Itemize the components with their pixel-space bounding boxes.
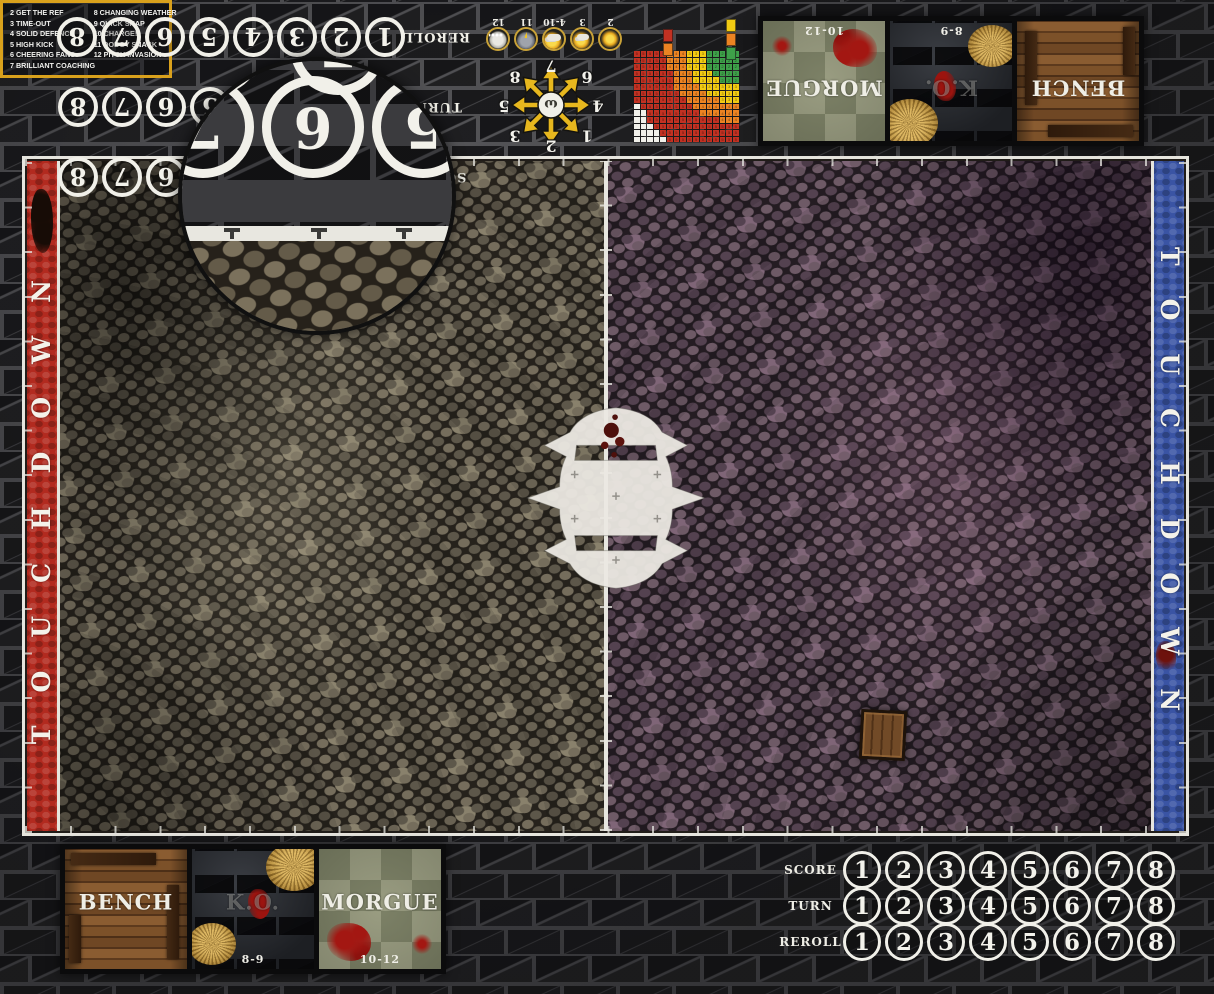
range-cell-long-bomb: 5 xyxy=(733,130,739,136)
touchdown-text-left: TOUCHDOWN xyxy=(27,161,57,831)
magnified-pitch-border xyxy=(182,226,452,241)
number-token: 1 xyxy=(843,923,881,961)
range-cell-long-pass: 4 xyxy=(733,104,739,110)
range-cell-long-pass: 4 xyxy=(680,71,686,77)
range-cell-long-bomb: 5 xyxy=(660,124,666,130)
range-cell-long-bomb: 5 xyxy=(674,110,680,116)
number-token: 2 xyxy=(885,887,923,925)
range-cell-long-pass: 4 xyxy=(713,97,719,103)
track-tokens: 12345678 xyxy=(843,923,1175,961)
range-cell-short-pass: 3 xyxy=(726,91,732,97)
range-cell-long-bomb: 5 xyxy=(700,124,706,130)
range-cell-out-of-range xyxy=(634,124,640,130)
range-cell-long-pass: 4 xyxy=(733,117,739,123)
number-token: 7 xyxy=(1095,923,1133,961)
pass-range-ruler: 5555544433322222555554443332222255555444… xyxy=(633,50,740,143)
range-cell-long-pass: 4 xyxy=(700,97,706,103)
magnified-content: 5678 76 xyxy=(182,61,452,331)
range-cell-long-bomb: 5 xyxy=(667,77,673,83)
range-cell-long-bomb: 5 xyxy=(667,117,673,123)
range-cell-long-pass: 4 xyxy=(700,104,706,110)
range-cell-out-of-range xyxy=(654,137,660,143)
dugout-box-bench: BENCH xyxy=(65,849,187,969)
range-cell-long-bomb: 5 xyxy=(720,130,726,136)
number-token: 2 xyxy=(885,923,923,961)
range-cell-long-bomb: 5 xyxy=(660,58,666,64)
range-cell-long-bomb: 5 xyxy=(654,117,660,123)
dugout-dice-range: 8-9 xyxy=(192,953,314,966)
number-token: 4 xyxy=(969,923,1007,961)
range-cell-long-bomb: 5 xyxy=(667,124,673,130)
dugout-dice-range: 10-12 xyxy=(763,24,885,37)
range-cell-long-bomb: 5 xyxy=(660,117,666,123)
sun-icon xyxy=(599,27,623,51)
range-cell-long-pass: 4 xyxy=(680,84,686,90)
range-cell-out-of-range xyxy=(641,124,647,130)
range-cell-long-bomb: 5 xyxy=(680,110,686,116)
range-cell-long-bomb: 5 xyxy=(641,58,647,64)
range-cell-out-of-range xyxy=(660,137,666,143)
range-cell-quick-pass: 2 xyxy=(733,77,739,83)
range-cell-long-bomb: 5 xyxy=(733,137,739,143)
range-cell-short-pass: 3 xyxy=(733,84,739,90)
range-cell-long-pass: 4 xyxy=(720,104,726,110)
range-cell-long-bomb: 5 xyxy=(674,97,680,103)
range-cell-long-bomb: 5 xyxy=(667,91,673,97)
number-token: 2 xyxy=(321,17,361,57)
weather-cell: 4-10 xyxy=(542,16,567,51)
range-legend-right xyxy=(726,19,736,60)
scatter-number: 7 xyxy=(545,57,556,76)
track-tokens: 12345678 xyxy=(57,17,405,57)
track-tokens: 12345678 xyxy=(843,887,1175,925)
track-tokens: 12345678 xyxy=(843,851,1175,889)
weather-track: 234-101112 xyxy=(486,16,623,51)
range-cell-quick-pass: 2 xyxy=(713,71,719,77)
number-token: 1 xyxy=(843,887,881,925)
range-cell-long-bomb: 5 xyxy=(713,117,719,123)
range-cell-out-of-range xyxy=(641,117,647,123)
range-cell-long-bomb: 5 xyxy=(693,130,699,136)
dugout-box-content: BENCH xyxy=(65,849,187,969)
range-cell-long-bomb: 5 xyxy=(634,71,640,77)
number-token: 6 xyxy=(1053,887,1091,925)
range-cell-long-bomb: 5 xyxy=(641,97,647,103)
range-cell-long-pass: 4 xyxy=(674,58,680,64)
legend-cell xyxy=(663,43,673,56)
number-token: 8 xyxy=(57,17,97,57)
range-cell-long-bomb: 5 xyxy=(660,110,666,116)
wood-beam xyxy=(69,915,81,963)
range-cell-long-bomb: 5 xyxy=(647,51,653,57)
range-cell-out-of-range xyxy=(634,130,640,136)
track-row: REROLL12345678 xyxy=(778,924,1190,960)
weather-dice-label: 4-10 xyxy=(543,16,566,26)
dugout-label: K.O. xyxy=(890,76,1012,101)
sun-small-cloud-icon xyxy=(571,27,595,51)
dugout-box-content: BENCH xyxy=(1017,21,1139,141)
range-cell-short-pass: 3 xyxy=(720,84,726,90)
number-token: 8 xyxy=(58,87,98,127)
legend-cell xyxy=(726,47,736,60)
range-cell-quick-pass: 2 xyxy=(726,64,732,70)
range-cell-long-pass: 4 xyxy=(733,110,739,116)
range-cell-long-bomb: 5 xyxy=(693,124,699,130)
range-cell-short-pass: 3 xyxy=(707,84,713,90)
range-cell-out-of-range xyxy=(647,130,653,136)
blood-splatter xyxy=(409,933,435,955)
dugout-box-content: MORGUE10-12 xyxy=(319,849,441,969)
range-cell-short-pass: 3 xyxy=(700,77,706,83)
range-cell-long-bomb: 5 xyxy=(647,97,653,103)
range-cell-short-pass: 3 xyxy=(700,84,706,90)
range-cell-short-pass: 3 xyxy=(693,51,699,57)
blood-bowl-playmat: { "product": {"description": "Cobbleston… xyxy=(0,0,1214,994)
range-cell-quick-pass: 2 xyxy=(726,71,732,77)
weather-cell: 12 xyxy=(486,16,511,51)
range-cell-long-pass: 4 xyxy=(726,110,732,116)
range-cell-long-pass: 4 xyxy=(667,58,673,64)
range-cell-long-pass: 4 xyxy=(693,97,699,103)
range-cell-long-bomb: 5 xyxy=(726,130,732,136)
track-label: REROLL xyxy=(778,935,843,949)
range-cell-long-bomb: 5 xyxy=(687,104,693,110)
range-cell-long-bomb: 5 xyxy=(674,117,680,123)
range-cell-short-pass: 3 xyxy=(707,71,713,77)
range-cell-quick-pass: 2 xyxy=(707,58,713,64)
range-cell-short-pass: 3 xyxy=(700,71,706,77)
range-cell-long-pass: 4 xyxy=(674,64,680,70)
scatter-number: 5 xyxy=(498,97,509,116)
range-cell-long-bomb: 5 xyxy=(654,77,660,83)
range-cell-long-bomb: 5 xyxy=(660,91,666,97)
number-token: 6 xyxy=(1053,851,1091,889)
range-cell-long-bomb: 5 xyxy=(647,110,653,116)
range-cell-short-pass: 3 xyxy=(720,91,726,97)
straw-pile xyxy=(266,849,314,891)
range-cell-long-bomb: 5 xyxy=(687,137,693,143)
range-cell-long-bomb: 5 xyxy=(647,91,653,97)
range-cell-short-pass: 3 xyxy=(693,64,699,70)
range-cell-long-bomb: 5 xyxy=(641,104,647,110)
range-cell-long-bomb: 5 xyxy=(726,124,732,130)
range-cell-long-bomb: 5 xyxy=(641,51,647,57)
range-cell-long-pass: 4 xyxy=(674,77,680,83)
range-cell-quick-pass: 2 xyxy=(713,64,719,70)
rain-cloud-icon xyxy=(515,27,539,51)
range-cell-short-pass: 3 xyxy=(693,77,699,83)
range-cell-long-bomb: 5 xyxy=(707,137,713,143)
range-cell-out-of-range xyxy=(647,137,653,143)
number-token: 7 xyxy=(1095,887,1133,925)
range-cell-long-bomb: 5 xyxy=(641,71,647,77)
range-cell-long-bomb: 5 xyxy=(647,84,653,90)
number-token: 3 xyxy=(927,851,965,889)
range-cell-long-pass: 4 xyxy=(726,117,732,123)
range-cell-long-bomb: 5 xyxy=(674,130,680,136)
range-cell-quick-pass: 2 xyxy=(707,64,713,70)
range-cell-long-bomb: 5 xyxy=(654,64,660,70)
range-cell-long-bomb: 5 xyxy=(707,124,713,130)
range-cell-long-pass: 4 xyxy=(674,84,680,90)
dugout-top: MORGUE10-12K.O.8-9BENCH xyxy=(758,16,1144,146)
weather-cell: 2 xyxy=(598,16,623,51)
range-cell-long-pass: 4 xyxy=(680,77,686,83)
number-token: 6 xyxy=(146,87,186,127)
range-cell-long-bomb: 5 xyxy=(641,84,647,90)
range-cell-short-pass: 3 xyxy=(687,64,693,70)
magnified-cobblestones xyxy=(182,241,452,331)
range-cell-long-pass: 4 xyxy=(713,104,719,110)
range-cell-long-bomb: 5 xyxy=(680,137,686,143)
range-cell-long-bomb: 5 xyxy=(674,91,680,97)
range-cell-long-bomb: 5 xyxy=(660,104,666,110)
range-cell-short-pass: 3 xyxy=(700,64,706,70)
number-token: 5 xyxy=(1011,887,1049,925)
range-cell-out-of-range xyxy=(634,110,640,116)
range-cell-long-bomb: 5 xyxy=(647,58,653,64)
number-token: 5 xyxy=(189,17,229,57)
range-cell-out-of-range xyxy=(641,137,647,143)
range-cell-long-pass: 4 xyxy=(680,51,686,57)
range-cell-long-bomb: 5 xyxy=(641,91,647,97)
range-cell-long-bomb: 5 xyxy=(634,58,640,64)
scatter-number: 2 xyxy=(545,137,556,156)
legend-cell xyxy=(726,19,736,32)
track-row: SCORE12345678 xyxy=(778,852,1190,888)
range-cell-long-bomb: 5 xyxy=(674,104,680,110)
range-cell-long-pass: 4 xyxy=(680,91,686,97)
range-cell-short-pass: 3 xyxy=(700,58,706,64)
blood-splatter xyxy=(769,35,795,57)
number-token: 4 xyxy=(969,887,1007,925)
range-cell-long-bomb: 5 xyxy=(660,77,666,83)
weather-dice-label: 11 xyxy=(520,16,533,26)
range-cell-long-pass: 4 xyxy=(680,64,686,70)
range-cell-long-pass: 4 xyxy=(687,71,693,77)
range-cell-long-bomb: 5 xyxy=(660,84,666,90)
legend-cell xyxy=(663,29,673,42)
endzone-blue: TOUCHDOWN xyxy=(1151,161,1184,831)
range-cell-long-pass: 4 xyxy=(693,104,699,110)
range-cell-long-bomb: 5 xyxy=(647,71,653,77)
range-cell-long-pass: 4 xyxy=(667,64,673,70)
dugout-box-ko: K.O.8-9 xyxy=(192,849,314,969)
number-token: 4 xyxy=(969,851,1007,889)
range-cell-long-bomb: 5 xyxy=(707,130,713,136)
range-cell-long-pass: 4 xyxy=(693,91,699,97)
range-cell-out-of-range xyxy=(634,137,640,143)
range-cell-long-pass: 4 xyxy=(720,117,726,123)
range-cell-long-bomb: 5 xyxy=(654,58,660,64)
track-label: TURN xyxy=(778,899,843,913)
range-cell-long-bomb: 5 xyxy=(654,71,660,77)
range-cell-long-pass: 4 xyxy=(707,97,713,103)
range-cell-long-bomb: 5 xyxy=(654,91,660,97)
range-cell-long-bomb: 5 xyxy=(667,97,673,103)
range-cell-long-bomb: 5 xyxy=(634,91,640,97)
snow-cloud-icon xyxy=(487,27,511,51)
dugout-label: BENCH xyxy=(1017,76,1139,101)
number-token: 3 xyxy=(277,17,317,57)
range-cell-long-bomb: 5 xyxy=(674,124,680,130)
range-cell-short-pass: 3 xyxy=(713,77,719,83)
range-cell-long-pass: 4 xyxy=(720,110,726,116)
endzone-red: TOUCHDOWN xyxy=(27,161,60,831)
magnified-partial-tokens: 76 xyxy=(178,57,386,95)
dugout-box-ko: K.O.8-9 xyxy=(890,21,1012,141)
range-cell-long-bomb: 5 xyxy=(713,124,719,130)
range-cell-long-bomb: 5 xyxy=(687,117,693,123)
range-cell-long-bomb: 5 xyxy=(667,104,673,110)
number-token: 4 xyxy=(233,17,273,57)
range-cell-long-bomb: 5 xyxy=(726,137,732,143)
range-cell-long-bomb: 5 xyxy=(667,137,673,143)
dugout-label: BENCH xyxy=(65,889,187,914)
scatter-template: ω 12345678 xyxy=(496,52,606,152)
scatter-number: 1 xyxy=(581,127,592,146)
magnified-number-token: 6 xyxy=(178,57,262,95)
number-token: 5 xyxy=(1011,923,1049,961)
range-cell-long-pass: 4 xyxy=(700,110,706,116)
range-cell-long-bomb: 5 xyxy=(641,64,647,70)
range-cell-long-bomb: 5 xyxy=(660,130,666,136)
range-cell-long-bomb: 5 xyxy=(707,117,713,123)
magnifier-inset: 5678 76 + xyxy=(178,57,456,335)
range-cell-long-bomb: 5 xyxy=(660,71,666,77)
range-cell-long-bomb: 5 xyxy=(654,110,660,116)
range-cell-long-bomb: 5 xyxy=(700,137,706,143)
range-cell-out-of-range xyxy=(641,110,647,116)
range-cell-quick-pass: 2 xyxy=(726,77,732,83)
touchdown-text-right: TOUCHDOWN xyxy=(1154,161,1184,831)
range-cell-long-bomb: 5 xyxy=(654,97,660,103)
range-cell-out-of-range xyxy=(647,124,653,130)
number-token: 3 xyxy=(927,923,965,961)
range-cell-long-bomb: 5 xyxy=(693,110,699,116)
range-cell-long-bomb: 5 xyxy=(713,130,719,136)
number-token: 1 xyxy=(365,17,405,57)
range-cell-long-bomb: 5 xyxy=(667,130,673,136)
range-legend-left xyxy=(663,29,673,56)
scatter-number: 8 xyxy=(509,68,520,87)
range-cell-quick-pass: 2 xyxy=(720,64,726,70)
range-cell-long-bomb: 5 xyxy=(647,117,653,123)
range-cell-long-bomb: 5 xyxy=(654,84,660,90)
range-cell-quick-pass: 2 xyxy=(707,51,713,57)
range-cell-long-bomb: 5 xyxy=(687,110,693,116)
range-cell-short-pass: 3 xyxy=(713,84,719,90)
scatter-number: 3 xyxy=(509,127,520,146)
range-cell-long-bomb: 5 xyxy=(667,110,673,116)
range-cell-quick-pass: 2 xyxy=(733,64,739,70)
range-cell-long-bomb: 5 xyxy=(687,130,693,136)
number-token: 2 xyxy=(885,851,923,889)
range-cell-long-bomb: 5 xyxy=(667,84,673,90)
dugout-box-content: MORGUE10-12 xyxy=(763,21,885,141)
range-cell-short-pass: 3 xyxy=(726,97,732,103)
magnified-wall: 5678 76 xyxy=(182,61,452,226)
scatter-number: 4 xyxy=(592,97,603,116)
range-cell-long-pass: 4 xyxy=(687,91,693,97)
range-cell-long-pass: 4 xyxy=(700,91,706,97)
number-token: 7 xyxy=(102,87,142,127)
dugout-box-content: K.O.8-9 xyxy=(890,21,1012,141)
range-cell-long-bomb: 5 xyxy=(720,124,726,130)
trapdoor xyxy=(859,709,908,761)
range-cell-long-bomb: 5 xyxy=(680,117,686,123)
range-cell-quick-pass: 2 xyxy=(720,58,726,64)
range-cell-short-pass: 3 xyxy=(687,51,693,57)
weather-cell: 11 xyxy=(514,16,539,51)
range-cell-quick-pass: 2 xyxy=(713,51,719,57)
range-cell-long-bomb: 5 xyxy=(647,77,653,83)
range-cell-long-pass: 4 xyxy=(713,110,719,116)
legend-cell xyxy=(726,33,736,46)
number-token: 8 xyxy=(1137,887,1175,925)
range-cell-long-bomb: 5 xyxy=(700,117,706,123)
range-cell-long-bomb: 5 xyxy=(667,71,673,77)
svg-text:ω: ω xyxy=(544,96,557,112)
range-cell-out-of-range xyxy=(641,130,647,136)
range-cell-long-bomb: 5 xyxy=(687,124,693,130)
range-cell-short-pass: 3 xyxy=(693,71,699,77)
number-token: 6 xyxy=(1053,923,1091,961)
range-cell-long-bomb: 5 xyxy=(713,137,719,143)
weather-cell: 3 xyxy=(570,16,595,51)
number-token: 8 xyxy=(1137,851,1175,889)
weather-dice-label: 2 xyxy=(607,16,613,26)
range-cell-long-bomb: 5 xyxy=(634,64,640,70)
range-cell-long-bomb: 5 xyxy=(693,117,699,123)
range-cell-long-bomb: 5 xyxy=(634,51,640,57)
number-token: 8 xyxy=(58,157,98,197)
wood-beam xyxy=(1048,125,1133,137)
range-cell-long-bomb: 5 xyxy=(654,104,660,110)
number-token: 7 xyxy=(102,157,142,197)
track-row: TURN12345678 xyxy=(778,888,1190,924)
range-cell-out-of-range xyxy=(654,130,660,136)
range-cell-long-pass: 4 xyxy=(680,58,686,64)
range-cell-quick-pass: 2 xyxy=(720,77,726,83)
range-cell-short-pass: 3 xyxy=(733,97,739,103)
range-cell-long-pass: 4 xyxy=(674,71,680,77)
number-token: 1 xyxy=(843,851,881,889)
track-label: SCORE xyxy=(778,863,843,877)
range-cell-long-pass: 4 xyxy=(687,97,693,103)
range-cell-out-of-range xyxy=(634,117,640,123)
range-cell-short-pass: 3 xyxy=(687,58,693,64)
range-cell-quick-pass: 2 xyxy=(720,51,726,57)
range-cell-long-bomb: 5 xyxy=(700,130,706,136)
number-token: 5 xyxy=(1011,851,1049,889)
weather-dice-label: 12 xyxy=(492,16,505,26)
number-token: 7 xyxy=(101,17,141,57)
range-cell-out-of-range xyxy=(634,104,640,110)
dugout-box-bench: BENCH xyxy=(1017,21,1139,141)
dugout-label: MORGUE xyxy=(319,889,441,914)
dugout-box-morgue: MORGUE10-12 xyxy=(763,21,885,141)
number-token: 6 xyxy=(145,17,185,57)
sun-cloud-icon xyxy=(543,27,567,51)
range-cell-long-bomb: 5 xyxy=(674,137,680,143)
range-cell-long-bomb: 5 xyxy=(647,104,653,110)
number-token: 3 xyxy=(927,887,965,925)
range-cell-long-bomb: 5 xyxy=(634,97,640,103)
range-cell-long-bomb: 5 xyxy=(680,104,686,110)
range-cell-short-pass: 3 xyxy=(733,91,739,97)
range-cell-quick-pass: 2 xyxy=(713,58,719,64)
